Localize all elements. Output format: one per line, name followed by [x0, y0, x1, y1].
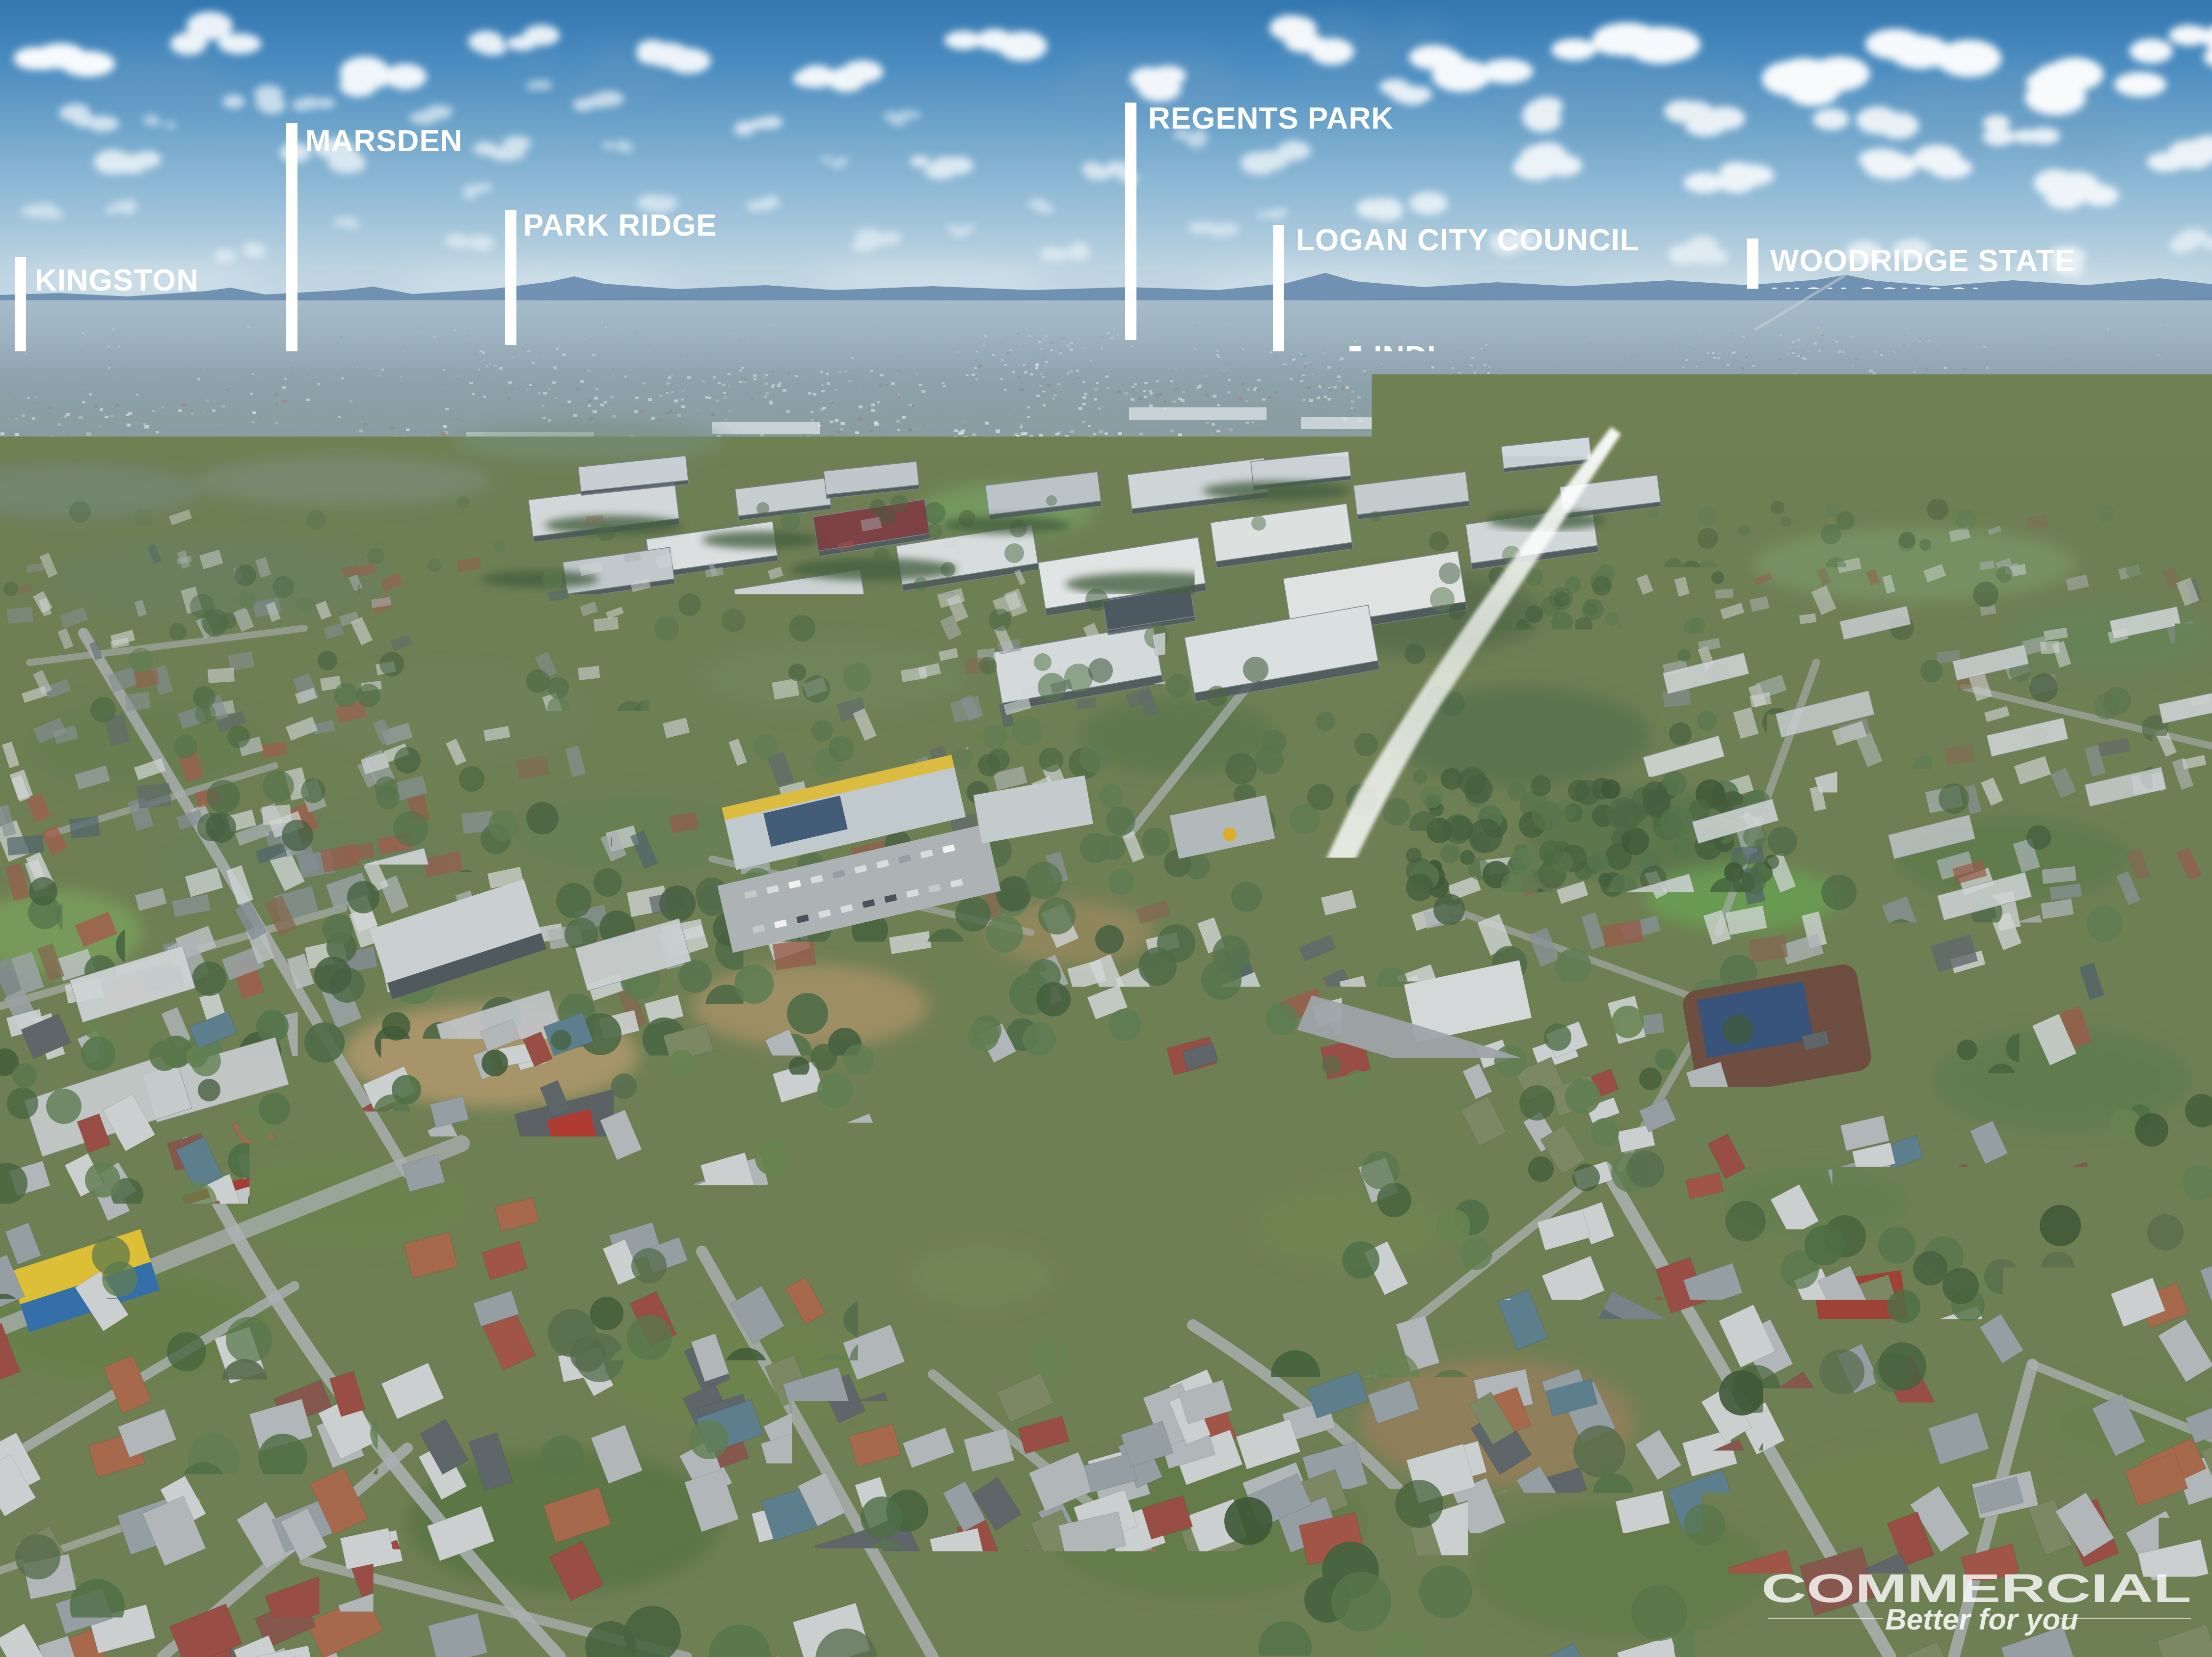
svg-text:KINGSTON: KINGSTON	[35, 264, 199, 297]
svg-text:INDUSTRIAL ESTATE: INDUSTRIAL ESTATE	[1374, 340, 1690, 374]
svg-text:MARSDEN: MARSDEN	[305, 124, 462, 158]
svg-text:WOODRIDGE STATE: WOODRIDGE STATE	[1770, 244, 2076, 278]
svg-text:PARK RIDGE: PARK RIDGE	[523, 209, 717, 242]
svg-text:HIGH SCHOOL: HIGH SCHOOL	[1770, 282, 1990, 316]
svg-text:REGENTS PARK: REGENTS PARK	[1148, 102, 1394, 135]
svg-text:LOGAN CITY COUNCIL: LOGAN CITY COUNCIL	[1296, 223, 1639, 257]
svg-text:Better for you: Better for you	[1885, 1603, 2078, 1636]
